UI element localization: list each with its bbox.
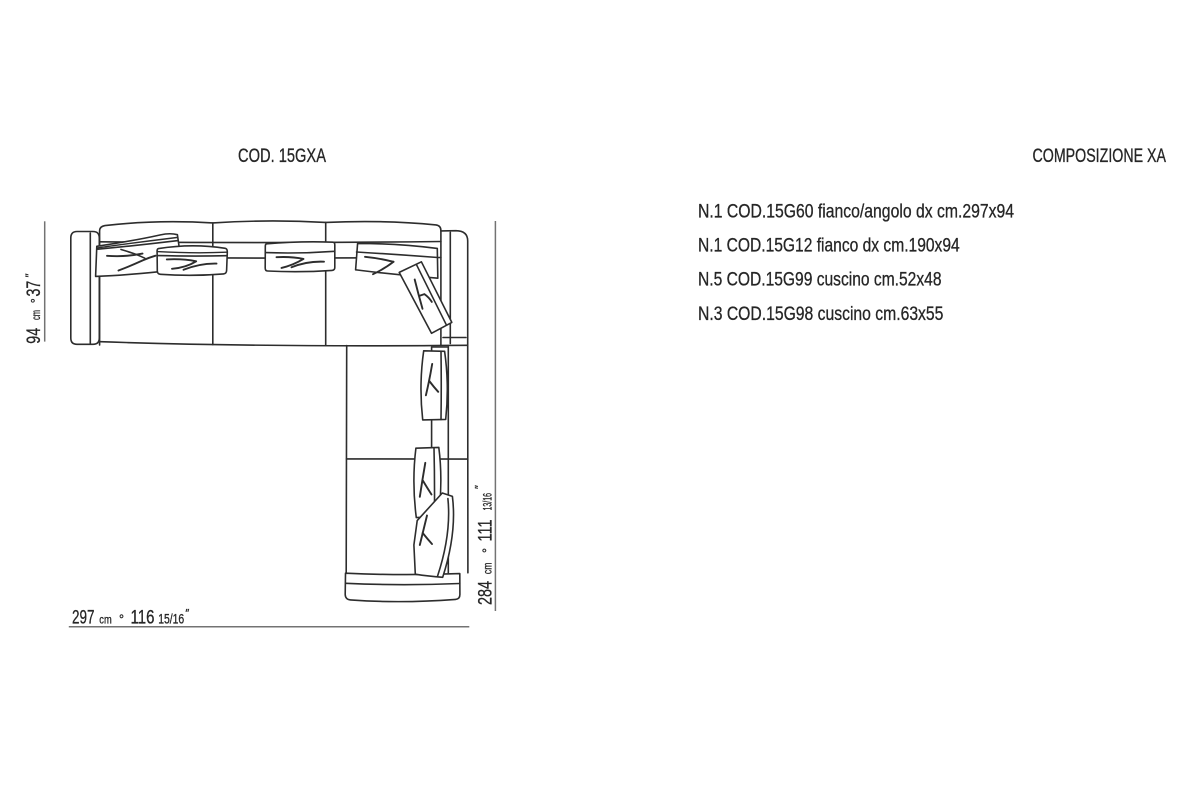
svg-text:N.1 COD.15G12 fianco dx cm.190: N.1 COD.15G12 fianco dx cm.190x94 [698,235,960,257]
svg-text:297: 297 [72,607,95,629]
svg-text:°: ° [119,613,124,627]
svg-text:COD. 15GXA: COD. 15GXA [238,146,326,167]
svg-text:111: 111 [476,520,497,542]
svg-text:″: ″ [185,608,189,620]
svg-text:°: ° [481,548,495,553]
svg-text:284: 284 [476,581,497,605]
svg-text:COMPOSIZIONE XA: COMPOSIZIONE XA [1033,146,1167,167]
svg-text:°: ° [29,298,43,303]
svg-text:116: 116 [131,607,155,629]
svg-text:N.3 COD.15G98 cuscino cm.63x55: N.3 COD.15G98 cuscino cm.63x55 [698,303,944,325]
svg-text:″: ″ [474,485,486,489]
svg-text:N.5 COD.15G99 cuscino cm.52x48: N.5 COD.15G99 cuscino cm.52x48 [698,269,942,291]
svg-text:cm: cm [481,563,495,575]
svg-text:13/16: 13/16 [481,493,495,511]
svg-text:N.1 COD.15G60 fianco/angolo dx: N.1 COD.15G60 fianco/angolo dx cm.297x94 [698,200,1014,222]
svg-text:94: 94 [24,328,45,344]
svg-text:″: ″ [24,273,36,277]
svg-text:cm: cm [29,310,43,320]
svg-text:cm: cm [99,613,111,627]
svg-text:37: 37 [24,281,45,297]
svg-text:15/16: 15/16 [158,611,184,627]
